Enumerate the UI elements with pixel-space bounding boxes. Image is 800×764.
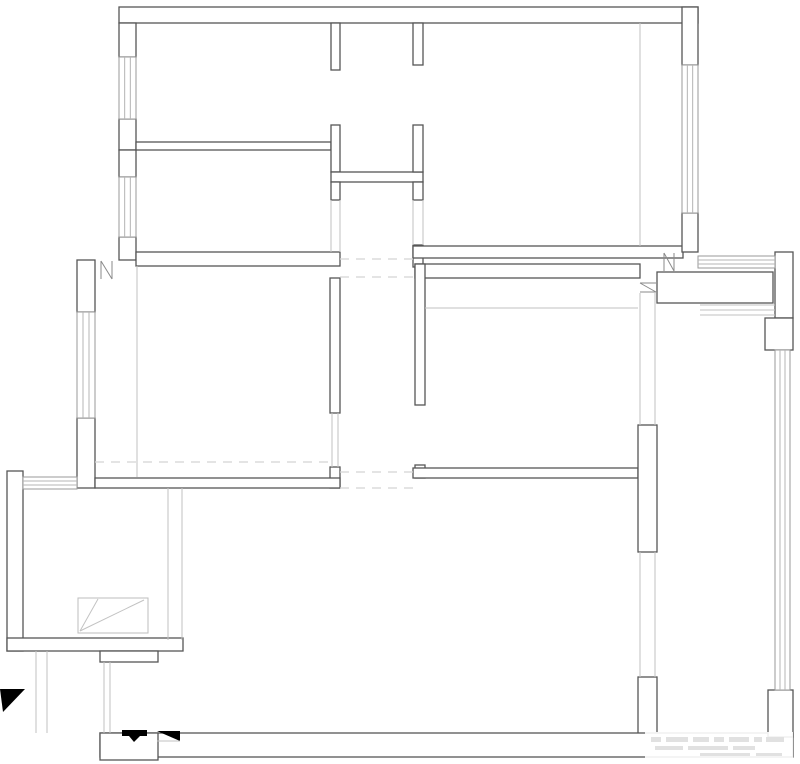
window [682, 65, 698, 213]
wall-segment [100, 733, 158, 760]
watermark-text-block [651, 737, 661, 742]
fixture-layer [78, 598, 148, 633]
window-frame [23, 477, 77, 489]
wall-segment [331, 182, 340, 200]
windows-layer [23, 57, 790, 690]
wall-segment [7, 638, 183, 651]
window-frame [119, 57, 136, 119]
wall-segment [413, 23, 423, 65]
entry-arrow-symbol [0, 689, 25, 712]
wall-segment [413, 182, 423, 200]
wall-segment [119, 150, 136, 177]
window-frame [77, 312, 95, 418]
window-frame [775, 350, 790, 690]
wall-segment [413, 246, 683, 258]
wall-segment [415, 264, 425, 405]
wall-segment [682, 7, 698, 65]
watermark-text-block [714, 737, 724, 742]
wall-segment [775, 252, 793, 318]
watermark-text-block [756, 753, 782, 756]
door-swing-mark [101, 261, 112, 279]
wall-segment [7, 471, 23, 651]
watermark-text-block [754, 737, 762, 742]
window-frame [119, 177, 136, 237]
wall-segment [330, 278, 340, 413]
wall-segment [638, 425, 657, 552]
door-swing-line [640, 283, 656, 292]
wall-segment [413, 125, 423, 172]
window [77, 312, 95, 418]
wall-segment [638, 677, 657, 737]
watermark-text-block [733, 746, 755, 750]
wall-segment [119, 119, 136, 150]
window [698, 256, 775, 268]
watermark-text-block [688, 746, 728, 750]
watermark-text-block [700, 753, 750, 756]
wall-segment [765, 318, 793, 350]
floor-plan [0, 0, 800, 764]
wall-segment [77, 260, 95, 312]
watermark-text-block [693, 737, 709, 742]
window [775, 350, 790, 690]
wall-segment [119, 23, 136, 57]
wall-segment [136, 252, 340, 266]
wall-segment [331, 172, 423, 182]
wall-segment [415, 264, 640, 278]
window [23, 477, 77, 489]
wall-segment [119, 237, 136, 260]
wall-segment [682, 213, 698, 252]
watermark-text-block [729, 737, 749, 742]
wall-segment [331, 125, 340, 172]
wall-segment [657, 272, 773, 303]
window [119, 57, 136, 119]
watermark-layer [645, 732, 793, 760]
watermark-text-block [666, 737, 688, 742]
wall-segment [331, 23, 340, 70]
wall-segment [768, 690, 793, 737]
floor-plan-svg [0, 0, 800, 764]
window [119, 177, 136, 237]
window-frame [698, 256, 775, 268]
door-swing-mark [640, 283, 656, 292]
window-frame [682, 65, 698, 213]
threshold-symbol [122, 730, 147, 736]
wall-segment [95, 478, 340, 488]
wall-segment [413, 468, 638, 478]
wall-segment [100, 651, 158, 662]
door-swing-line [101, 261, 112, 279]
walls-layer [7, 7, 793, 760]
wall-segment [136, 142, 331, 150]
wall-segment [119, 7, 698, 23]
watermark-text-block [655, 746, 683, 750]
wall-segment [77, 418, 95, 488]
watermark-text-block [766, 737, 784, 742]
dashed-lines-layer [95, 259, 413, 488]
